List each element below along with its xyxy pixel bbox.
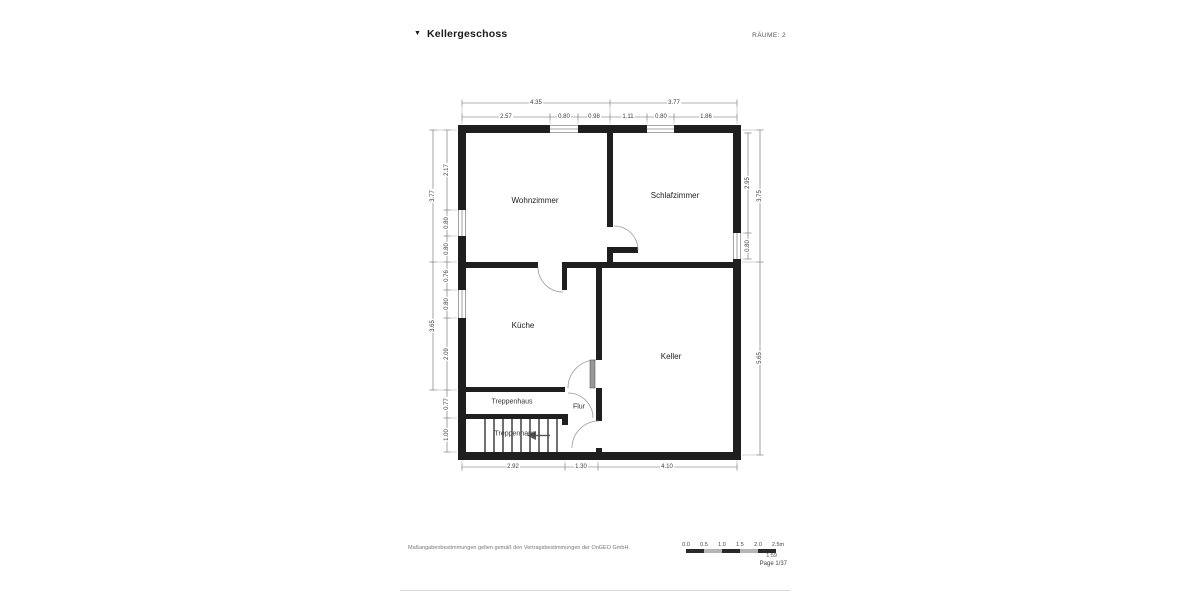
window-top-right-icon xyxy=(647,126,674,133)
dim-left-inner-3: 0.80 xyxy=(444,242,450,256)
section-collapse-icon[interactable]: ▼ xyxy=(414,30,421,37)
dim-bottom-1: 2.92 xyxy=(506,464,520,470)
room-label-wohnzimmer: Wohnzimmer xyxy=(512,197,559,205)
dim-top-inner-1: 2.57 xyxy=(499,114,513,120)
dim-top-inner-4: 1.11 xyxy=(621,114,634,120)
dim-top-outer-1: 4.35 xyxy=(529,100,543,106)
room-label-schlafzimmer: Schlafzimmer xyxy=(651,192,699,200)
floor-plan xyxy=(400,60,800,480)
door-leaf-icon xyxy=(590,360,595,388)
scale-tick-3: 1.5 xyxy=(736,543,744,549)
page-number: Page 1/37 xyxy=(760,561,787,567)
room-label-flur: Flur xyxy=(573,404,585,411)
dim-left-inner-4: 0.76 xyxy=(444,269,450,283)
dim-top-inner-5: 0.80 xyxy=(654,114,668,120)
floor-title: Kellergeschoss xyxy=(427,28,507,40)
scale-tick-1: 0.5 xyxy=(700,543,708,549)
door-arc-kueche-top-icon xyxy=(538,267,563,292)
dim-left-inner-7: 0.77 xyxy=(444,397,450,411)
room-label-treppenhaus-stairs: Treppenhaus xyxy=(495,431,536,438)
dim-right-inner-2: 0.80 xyxy=(745,239,751,253)
dim-top-inner-3: 0.98 xyxy=(587,114,601,120)
dim-left-outer-2: 3.65 xyxy=(430,319,436,333)
dim-right-outer-1: 3.75 xyxy=(757,189,763,203)
dim-top-outer-2: 3.77 xyxy=(667,100,681,106)
door-arc-flur-keller-icon xyxy=(572,421,599,448)
dim-right-inner-1: 2.95 xyxy=(745,176,751,190)
dim-left-inner-5: 0.80 xyxy=(444,297,450,311)
window-left-lower-icon xyxy=(459,290,466,318)
room-label-treppenhaus: Treppenhaus xyxy=(492,399,533,406)
window-right-icon xyxy=(734,233,741,259)
dim-top-inner-6: 1.86 xyxy=(699,114,713,120)
page-bottom-rule xyxy=(400,590,790,591)
dim-left-outer-1: 3.77 xyxy=(430,189,436,203)
scale-tick-2: 1.0 xyxy=(718,543,726,549)
window-left-upper-icon xyxy=(459,210,466,236)
window-top-left-icon xyxy=(550,126,578,133)
room-label-kueche: Küche xyxy=(512,322,535,330)
dim-left-inner-1: 2.17 xyxy=(444,163,450,177)
room-label-keller: Keller xyxy=(661,353,681,361)
dim-right-outer-2: 5.65 xyxy=(757,351,763,365)
dim-bottom-2: 1.30 xyxy=(574,464,588,470)
scale-tick-0: 0.0 xyxy=(682,543,690,549)
dim-left-inner-2: 0.80 xyxy=(444,216,450,230)
dim-left-inner-6: 2.09 xyxy=(444,347,450,361)
door-arc-schlafzimmer-icon xyxy=(614,226,638,250)
dim-bottom-3: 4.10 xyxy=(660,464,674,470)
scale-tick-4: 2.0 xyxy=(754,543,762,549)
disclaimer-text: Maßangabenbestimmungen gelten gemäß den … xyxy=(408,545,630,551)
dim-top-inner-2: 0.80 xyxy=(557,114,571,120)
scale-bar-icon xyxy=(686,549,776,553)
rooms-count-label: RÄUME: 2 xyxy=(752,32,786,39)
scale-tick-5: 2.5m xyxy=(772,543,784,549)
scale-ratio: 1:59 xyxy=(766,554,777,560)
dim-left-inner-8: 1.00 xyxy=(444,428,450,442)
